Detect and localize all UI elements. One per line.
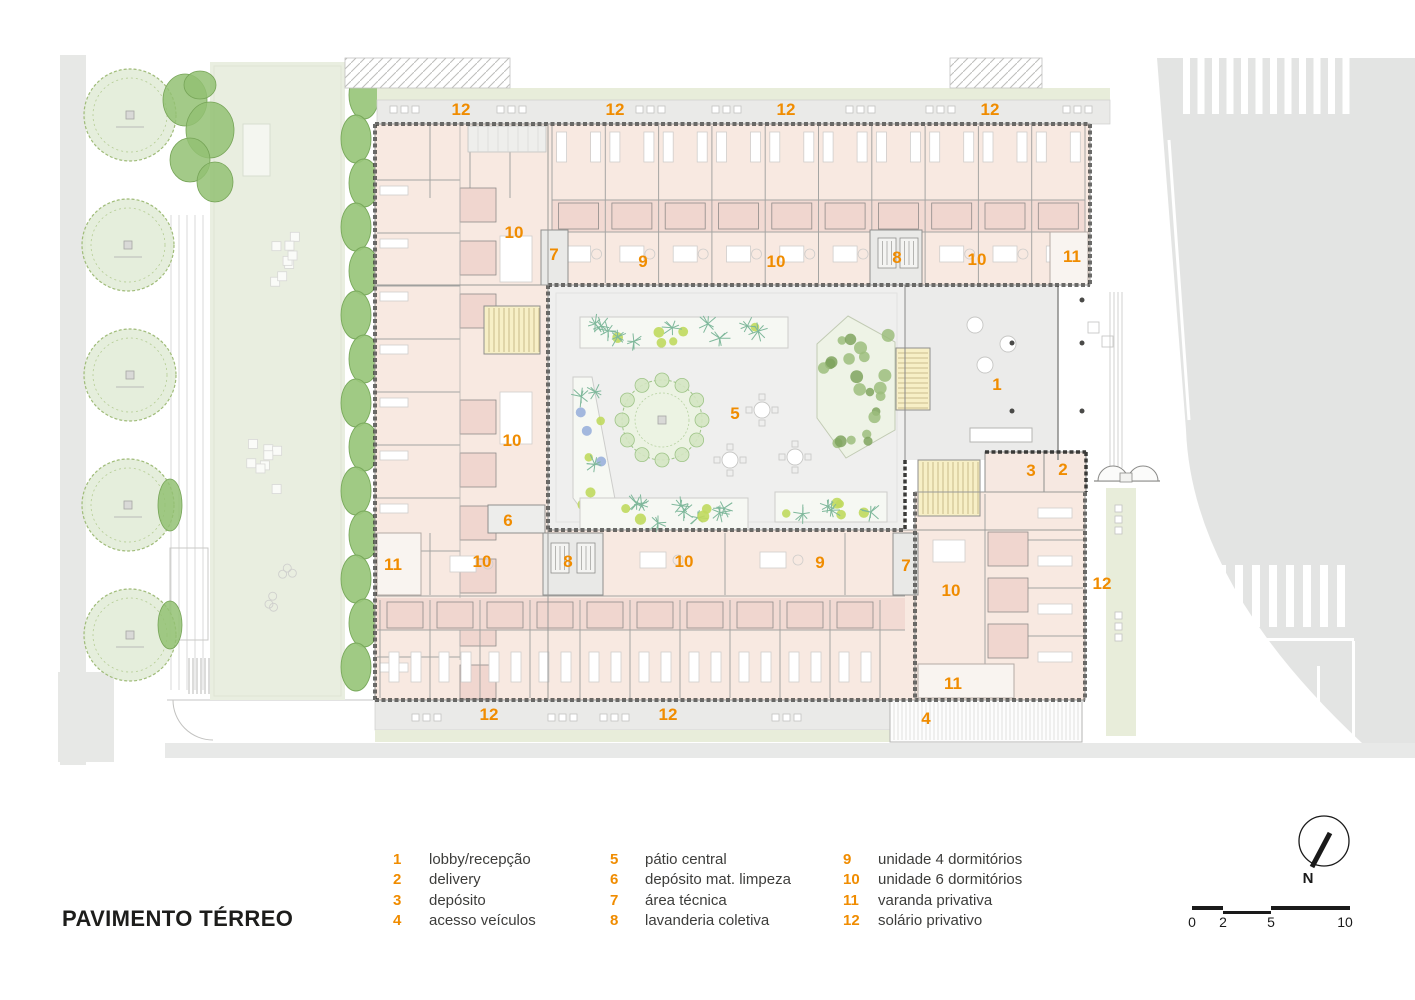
north-arrow-icon bbox=[1290, 808, 1362, 894]
legend-item-number: 4 bbox=[393, 912, 406, 929]
legend-item-7: 7área técnica bbox=[610, 892, 791, 912]
street-tree bbox=[84, 329, 176, 421]
legend-item-number: 3 bbox=[393, 892, 406, 909]
legend-item-number: 9 bbox=[843, 851, 869, 868]
scale-bar: 02510 bbox=[1185, 898, 1365, 938]
legend-item-number: 5 bbox=[610, 851, 623, 868]
lawn bbox=[210, 62, 345, 700]
legend-item-10: 10unidade 6 dormitórios bbox=[843, 871, 1022, 891]
building bbox=[375, 124, 1090, 700]
legend-item-number: 7 bbox=[610, 892, 623, 909]
legend-item-label: área técnica bbox=[645, 892, 727, 909]
scale-tick-label: 10 bbox=[1337, 914, 1353, 930]
legend-item-1: 1lobby/recepção bbox=[393, 851, 536, 871]
north-arrow: N bbox=[1290, 808, 1362, 894]
legend-item-6: 6depósito mat. limpeza bbox=[610, 871, 791, 891]
page-title: PAVIMENTO TÉRREO bbox=[62, 906, 293, 932]
scale-bar-segments bbox=[1185, 898, 1365, 914]
legend-item-9: 9unidade 4 dormitórios bbox=[843, 851, 1022, 871]
legend-item-3: 3depósito bbox=[393, 892, 536, 912]
legend-item-number: 10 bbox=[843, 871, 869, 888]
legend-item-number: 2 bbox=[393, 871, 406, 888]
legend-item-number: 11 bbox=[843, 892, 869, 909]
legend-item-label: solário privativo bbox=[878, 912, 982, 929]
floor-plan-drawing bbox=[0, 0, 1415, 1000]
legend-item-11: 11varanda privativa bbox=[843, 892, 1022, 912]
legend-item-number: 6 bbox=[610, 871, 623, 888]
legend-item-label: lobby/recepção bbox=[429, 851, 531, 868]
legend-column-3: 9unidade 4 dormitórios10unidade 6 dormit… bbox=[843, 851, 1022, 933]
vehicle-access-area bbox=[890, 700, 1082, 742]
street-trees bbox=[82, 69, 176, 681]
legend-item-label: acesso veículos bbox=[429, 912, 536, 929]
scale-tick-label: 2 bbox=[1219, 914, 1227, 930]
legend-item-label: depósito mat. limpeza bbox=[645, 871, 791, 888]
legend-item-2: 2delivery bbox=[393, 871, 536, 891]
legend-item-number: 8 bbox=[610, 912, 623, 929]
legend-item-8: 8lavanderia coletiva bbox=[610, 912, 791, 932]
street-tree bbox=[84, 69, 176, 161]
north-label: N bbox=[1303, 870, 1314, 887]
legend-item-label: delivery bbox=[429, 871, 481, 888]
legend-item-4: 4acesso veículos bbox=[393, 912, 536, 932]
legend-item-label: unidade 4 dormitórios bbox=[878, 851, 1022, 868]
legend-item-number: 12 bbox=[843, 912, 869, 929]
entrance-canopy bbox=[1094, 292, 1160, 482]
scale-tick-label: 0 bbox=[1188, 914, 1196, 930]
legend-item-label: depósito bbox=[429, 892, 486, 909]
legend-item-label: unidade 6 dormitórios bbox=[878, 871, 1022, 888]
legend-item-number: 1 bbox=[393, 851, 406, 868]
legend-column-1: 1lobby/recepção2delivery3depósito4acesso… bbox=[393, 851, 536, 933]
floor-plan-sheet: 1212121210791081011153210611108109710121… bbox=[0, 0, 1415, 1000]
scale-tick-label: 5 bbox=[1267, 914, 1275, 930]
legend-item-12: 12solário privativo bbox=[843, 912, 1022, 932]
street-road bbox=[1157, 58, 1415, 743]
legend-item-5: 5pátio central bbox=[610, 851, 791, 871]
legend-item-label: varanda privativa bbox=[878, 892, 992, 909]
legend-item-label: pátio central bbox=[645, 851, 727, 868]
street-tree bbox=[82, 199, 174, 291]
legend-column-2: 5pátio central6depósito mat. limpeza7áre… bbox=[610, 851, 791, 933]
legend-item-label: lavanderia coletiva bbox=[645, 912, 769, 929]
